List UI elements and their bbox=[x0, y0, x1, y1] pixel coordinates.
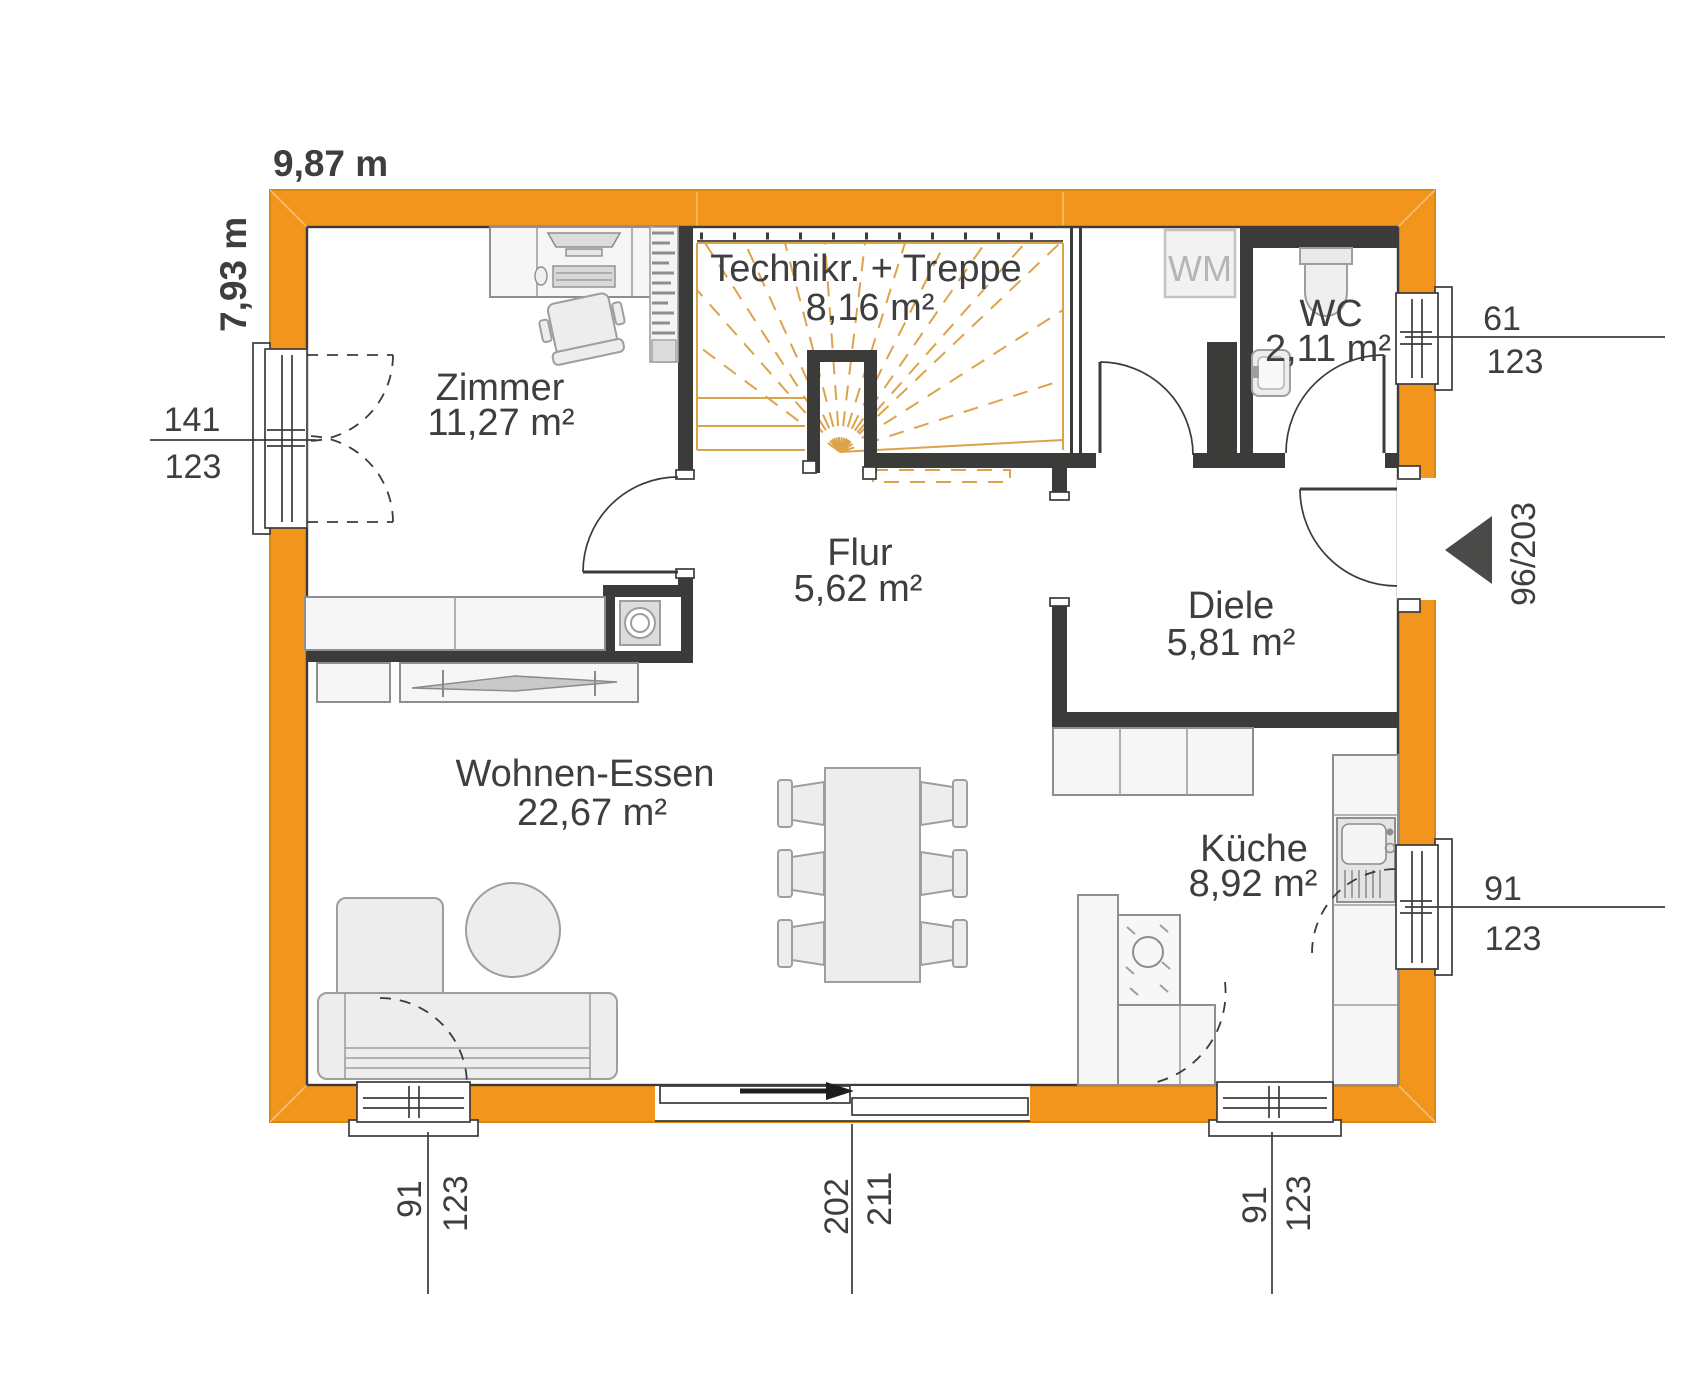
keyboard-icon bbox=[553, 266, 615, 287]
dim-sliding-door-w: 202 bbox=[818, 1178, 856, 1235]
bookshelf bbox=[650, 227, 678, 362]
window-south-right bbox=[1209, 1082, 1341, 1136]
tv-lowboard bbox=[317, 663, 638, 702]
kitchen-counters bbox=[1053, 728, 1398, 1085]
office-chair bbox=[536, 290, 631, 367]
sofa bbox=[318, 993, 617, 1079]
dim-window-se-h: 123 bbox=[1280, 1175, 1318, 1232]
dining-set bbox=[778, 768, 967, 982]
window-west bbox=[253, 343, 393, 534]
kitchen-sink bbox=[1337, 818, 1395, 902]
floor-plan-drawing: WM bbox=[0, 0, 1705, 1395]
opening-flur-diele bbox=[1050, 492, 1069, 606]
dim-window-west-w: 141 bbox=[164, 401, 221, 439]
dim-window-se-w: 91 bbox=[1236, 1186, 1274, 1224]
dining-table bbox=[825, 768, 920, 982]
monitor-icon bbox=[548, 233, 620, 247]
room-label-diele: Diele bbox=[1188, 585, 1275, 627]
sideboard bbox=[305, 597, 605, 650]
room-area-zimmer: 11,27 m² bbox=[427, 402, 574, 444]
dim-window-ne-h: 123 bbox=[1487, 343, 1544, 381]
doors bbox=[583, 355, 1436, 612]
washing-machine: WM bbox=[1165, 230, 1235, 297]
dim-entrance-door: 96/203 bbox=[1505, 502, 1543, 606]
room-area-kueche: 8,92 m² bbox=[1189, 863, 1318, 905]
door-technikraum bbox=[1100, 362, 1193, 455]
room-label-technik: Technikr. + Treppe bbox=[710, 248, 1022, 290]
coffee-table bbox=[466, 883, 560, 977]
stove bbox=[1118, 915, 1180, 1005]
room-area-flur: 5,62 m² bbox=[794, 568, 923, 610]
room-area-wc: 2,11 m² bbox=[1265, 328, 1391, 370]
dim-window-west-h: 123 bbox=[165, 448, 222, 486]
sliding-door-south bbox=[655, 1082, 1030, 1121]
dim-window-sw-w: 91 bbox=[391, 1180, 429, 1218]
room-area-diele: 5,81 m² bbox=[1167, 622, 1296, 664]
room-area-wohnen: 22,67 m² bbox=[517, 792, 667, 834]
chimney bbox=[620, 601, 660, 645]
dim-window-east-h: 123 bbox=[1485, 920, 1542, 958]
overall-height-label: 7,93 m bbox=[213, 217, 254, 332]
room-label-wohnen: Wohnen-Essen bbox=[455, 753, 714, 795]
room-area-technik: 8,16 m² bbox=[806, 287, 935, 329]
sofa-group bbox=[318, 883, 617, 1079]
entrance-door bbox=[1300, 466, 1436, 612]
floor-plan-page: WM bbox=[0, 0, 1705, 1395]
washing-machine-label: WM bbox=[1168, 248, 1232, 289]
dim-window-sw-h: 123 bbox=[437, 1175, 475, 1232]
overall-width-label: 9,87 m bbox=[273, 143, 388, 184]
door-zimmer bbox=[583, 470, 694, 578]
desk bbox=[490, 227, 653, 297]
mouse-icon bbox=[535, 267, 547, 285]
dim-window-ne-w: 61 bbox=[1483, 300, 1521, 338]
dim-window-east-w: 91 bbox=[1484, 870, 1522, 908]
window-north-east bbox=[1396, 287, 1452, 390]
dim-sliding-door-h: 211 bbox=[861, 1172, 899, 1226]
entrance-arrow-icon bbox=[1445, 516, 1492, 584]
